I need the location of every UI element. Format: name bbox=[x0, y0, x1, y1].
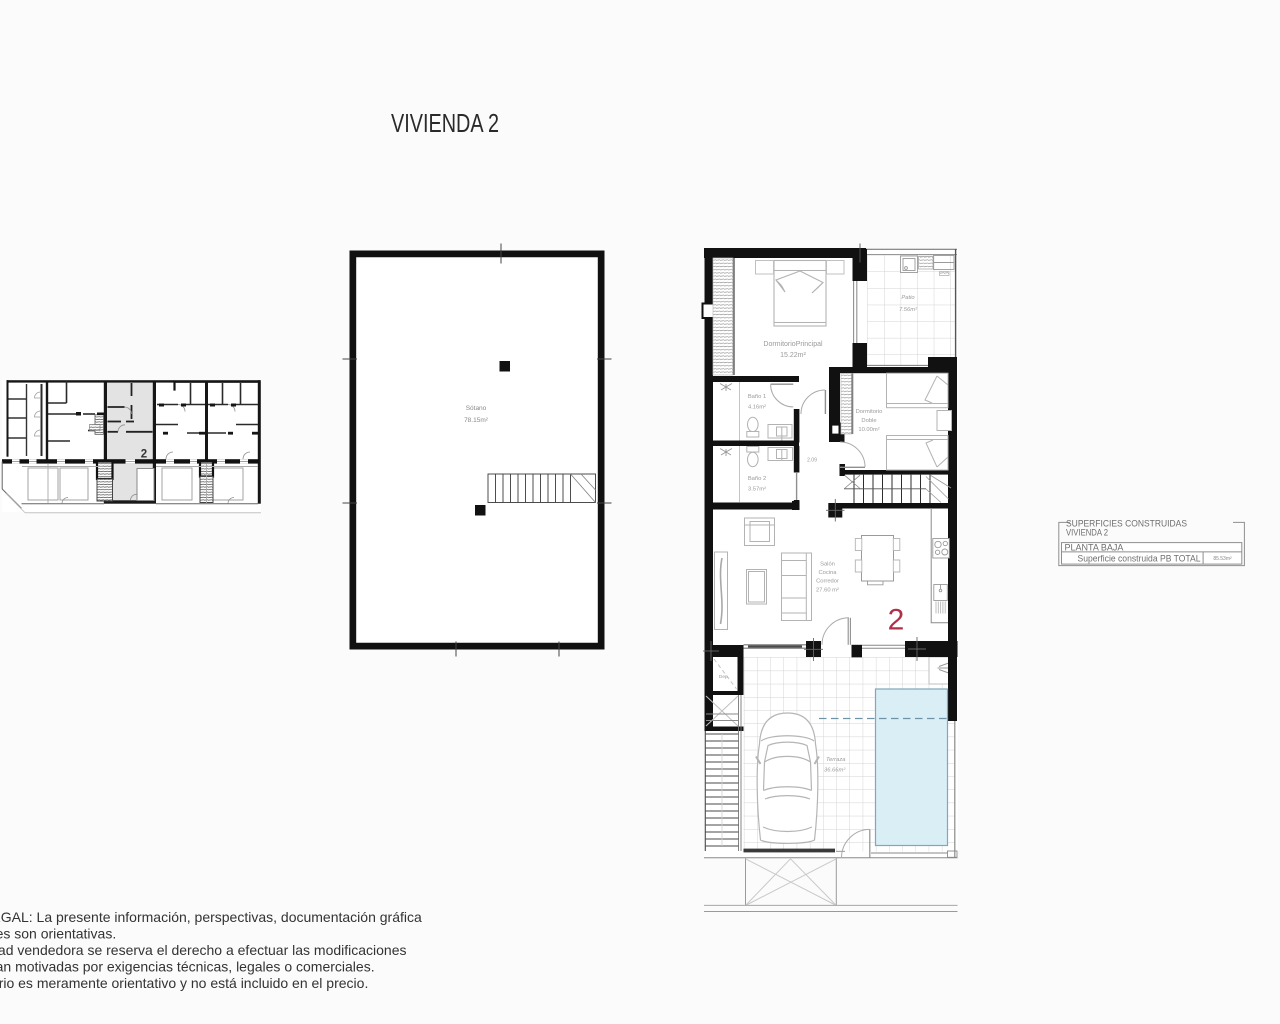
svg-text:Superficie construida PB TOTAL: Superficie construida PB TOTAL bbox=[1078, 554, 1201, 564]
svg-text:3.57m²: 3.57m² bbox=[748, 487, 766, 493]
svg-text:Baño 1: Baño 1 bbox=[748, 394, 766, 400]
svg-text:36.66m²: 36.66m² bbox=[824, 768, 846, 774]
svg-text:2: 2 bbox=[141, 449, 147, 461]
svg-text:2.09: 2.09 bbox=[807, 458, 817, 464]
svg-text:Corredor: Corredor bbox=[816, 579, 839, 585]
svg-text:15.22m²: 15.22m² bbox=[780, 352, 806, 359]
svg-text:que vengan motivadas por exige: que vengan motivadas por exigencias técn… bbox=[0, 959, 375, 975]
svg-text:DormitorioPrincipal: DormitorioPrincipal bbox=[763, 341, 823, 348]
svg-text:VIVIENDA 2: VIVIENDA 2 bbox=[391, 108, 499, 138]
svg-text:2: 2 bbox=[888, 604, 905, 637]
svg-text:Doble: Doble bbox=[861, 418, 876, 424]
svg-text:78.15m²: 78.15m² bbox=[464, 417, 489, 424]
svg-text:VIVIENDA 2: VIVIENDA 2 bbox=[1066, 528, 1108, 538]
svg-text:Patio: Patio bbox=[901, 295, 915, 301]
svg-text:85.53m²: 85.53m² bbox=[1213, 556, 1232, 562]
svg-text:La sociedad vendedora se reser: La sociedad vendedora se reserva el dere… bbox=[0, 942, 407, 958]
svg-text:Salón: Salón bbox=[820, 562, 835, 568]
svg-text:Dep.: Dep. bbox=[719, 674, 729, 680]
svg-text:27.60 m²: 27.60 m² bbox=[816, 588, 839, 594]
svg-text:10.00m²: 10.00m² bbox=[858, 427, 879, 433]
svg-text:4.16m²: 4.16m² bbox=[748, 405, 766, 411]
svg-text:El mobiliario es meramente ori: El mobiliario es meramente orientativo y… bbox=[0, 975, 368, 991]
svg-text:Dormitorio: Dormitorio bbox=[856, 409, 883, 415]
svg-text:Terraza: Terraza bbox=[826, 757, 846, 763]
svg-text:Sótano: Sótano bbox=[466, 405, 487, 412]
svg-text:7.56m²: 7.56m² bbox=[899, 307, 918, 313]
svg-text:e imágenes son orientativas.: e imágenes son orientativas. bbox=[0, 926, 116, 942]
svg-text:Baño 2: Baño 2 bbox=[748, 476, 766, 482]
svg-text:AVISO LEGAL: La presente infor: AVISO LEGAL: La presente información, pe… bbox=[0, 909, 422, 925]
svg-text:Cocina: Cocina bbox=[818, 570, 837, 576]
svg-text:PLANTA BAJA: PLANTA BAJA bbox=[1065, 543, 1124, 553]
